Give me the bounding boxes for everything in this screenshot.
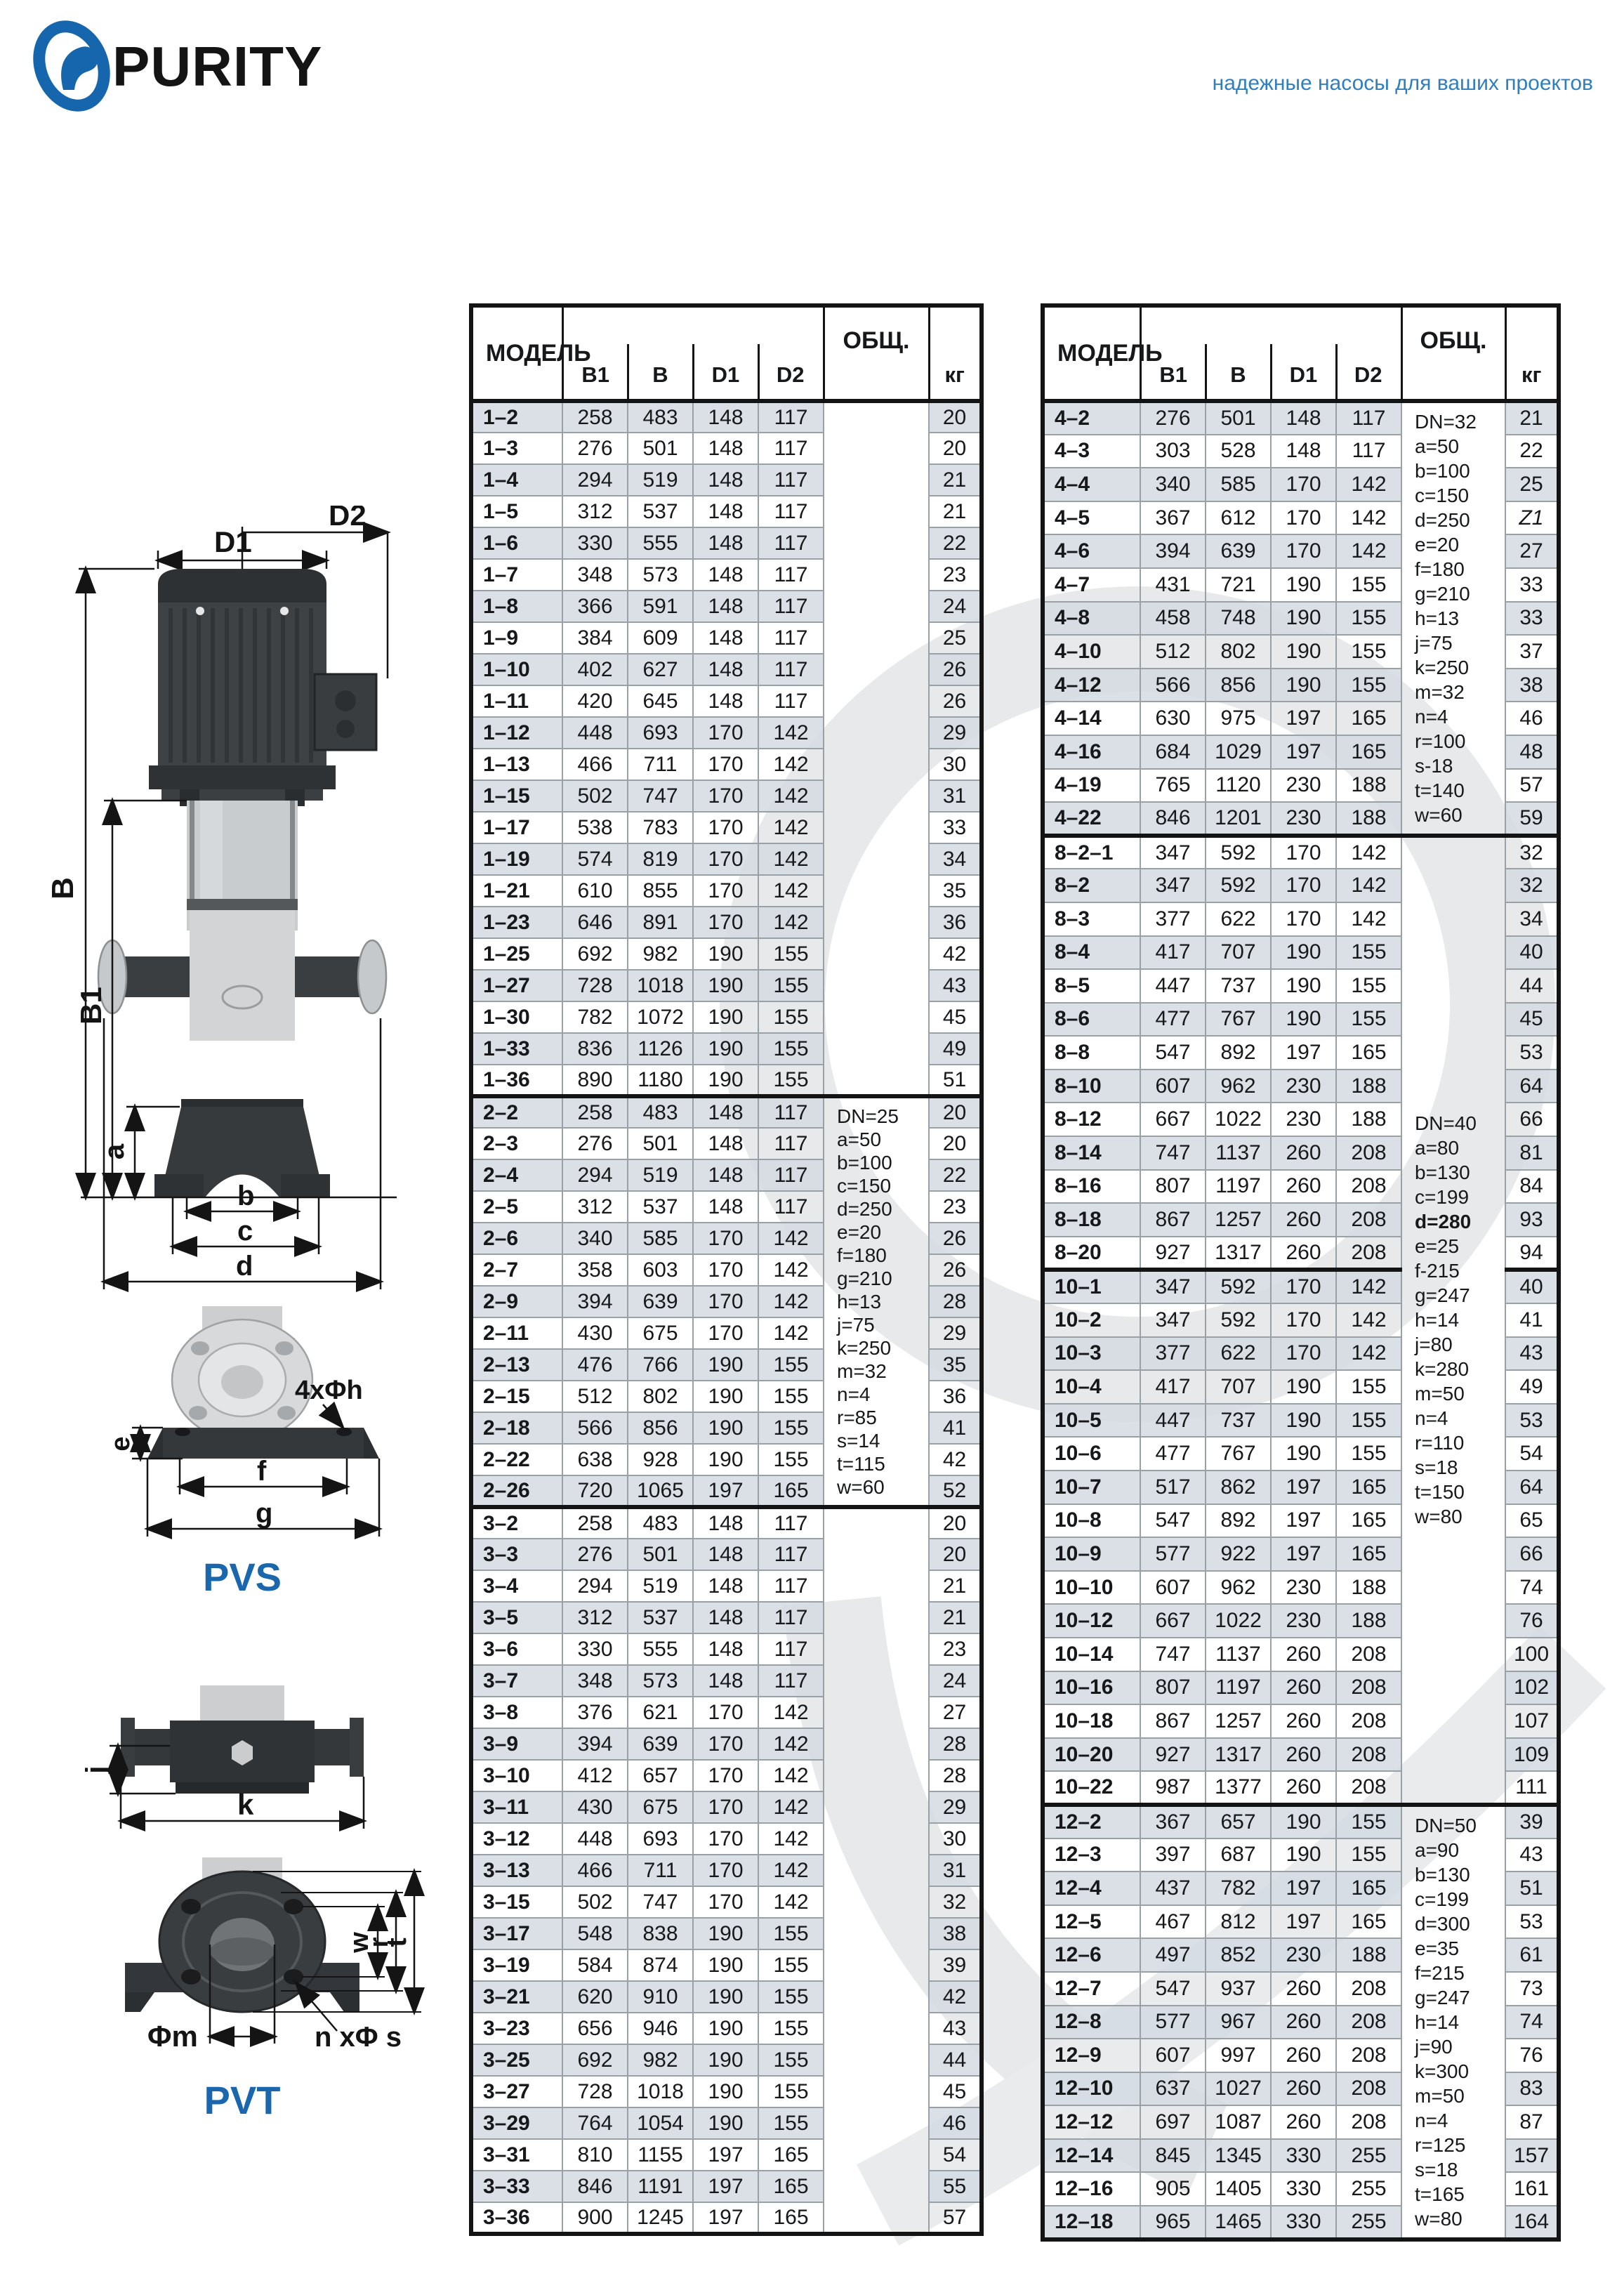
value-cell: 276 xyxy=(1140,401,1206,435)
value-cell: 155 xyxy=(758,1065,824,1096)
value-cell: 117 xyxy=(758,1507,824,1539)
value-cell: 165 xyxy=(1336,1036,1401,1070)
value-cell: 728 xyxy=(562,970,628,1001)
value-cell: 155 xyxy=(1336,568,1401,602)
value-cell: 190 xyxy=(693,1981,758,2013)
value-cell: 430 xyxy=(562,1317,628,1349)
dn-note-line: DN=40 xyxy=(1415,1111,1505,1136)
value-cell: 170 xyxy=(693,1728,758,1760)
kg-cell: 40 xyxy=(1505,1270,1559,1303)
value-cell: 609 xyxy=(628,622,693,654)
model-cell: 3–12 xyxy=(471,1823,562,1855)
kg-cell: 23 xyxy=(929,559,982,591)
value-cell: 148 xyxy=(693,591,758,622)
model-cell: 4–10 xyxy=(1043,635,1140,669)
value-cell: 117 xyxy=(758,1570,824,1602)
value-cell: 592 xyxy=(1206,1270,1271,1303)
value-cell: 142 xyxy=(758,1886,824,1918)
kg-cell: 65 xyxy=(1505,1504,1559,1538)
value-cell: 117 xyxy=(758,1602,824,1633)
value-cell: 170 xyxy=(1271,501,1336,535)
value-cell: 330 xyxy=(1271,2206,1336,2239)
dn-note-line: b=100 xyxy=(837,1151,928,1174)
value-cell: 155 xyxy=(758,2107,824,2139)
value-cell: 165 xyxy=(1336,1471,1401,1504)
kg-cell: 39 xyxy=(1505,1805,1559,1838)
value-cell: 197 xyxy=(1271,1036,1336,1070)
value-cell: 639 xyxy=(628,1286,693,1317)
model-cell: 1–27 xyxy=(471,970,562,1001)
value-cell: 537 xyxy=(628,496,693,527)
value-cell: 767 xyxy=(1206,1437,1271,1471)
value-cell: 477 xyxy=(1140,1003,1206,1037)
value-cell: 810 xyxy=(562,2139,628,2171)
value-cell: 165 xyxy=(1336,702,1401,735)
value-cell: 402 xyxy=(562,654,628,685)
model-cell: 1–8 xyxy=(471,591,562,622)
value-cell: 170 xyxy=(1271,1337,1336,1371)
kg-cell: 22 xyxy=(929,1159,982,1191)
table-row-1–2: 1–225848314811720 xyxy=(471,401,982,433)
dn-note-line: k=250 xyxy=(837,1336,928,1360)
kg-cell: 64 xyxy=(1505,1471,1559,1504)
value-cell: 260 xyxy=(1271,1738,1336,1772)
value-cell: 190 xyxy=(693,2044,758,2076)
value-cell: 117 xyxy=(758,1633,824,1665)
value-cell: 142 xyxy=(758,1254,824,1286)
value-cell: 197 xyxy=(693,2202,758,2234)
value-cell: 117 xyxy=(758,622,824,654)
value-cell: 1072 xyxy=(628,1001,693,1033)
value-cell: 645 xyxy=(628,685,693,717)
model-cell: 8–20 xyxy=(1043,1237,1140,1270)
kg-cell: 20 xyxy=(929,1539,982,1570)
value-cell: 165 xyxy=(758,1475,824,1507)
value-cell: 258 xyxy=(562,401,628,433)
value-cell: 577 xyxy=(1140,2006,1206,2039)
value-cell: 190 xyxy=(693,1349,758,1381)
kg-cell: 29 xyxy=(929,717,982,749)
value-cell: 148 xyxy=(693,1602,758,1633)
value-cell: 610 xyxy=(562,875,628,907)
model-cell: 12–12 xyxy=(1043,2105,1140,2139)
model-cell: 10–18 xyxy=(1043,1704,1140,1738)
dn-note-line: f=215 xyxy=(1415,1961,1505,1985)
model-cell: 12–2 xyxy=(1043,1805,1140,1838)
dn-note-line: f=180 xyxy=(1415,557,1505,581)
kg-cell: 57 xyxy=(929,2202,982,2234)
value-cell: 1377 xyxy=(1206,1771,1271,1805)
kg-cell: 31 xyxy=(929,780,982,812)
dn-note-line: e=25 xyxy=(1415,1234,1505,1258)
value-cell: 431 xyxy=(1140,568,1206,602)
value-cell: 170 xyxy=(693,1697,758,1728)
value-cell: 707 xyxy=(1206,936,1271,970)
dn-note-line: n=4 xyxy=(1415,704,1505,729)
value-cell: 548 xyxy=(562,1918,628,1949)
kg-cell: 76 xyxy=(1505,1604,1559,1638)
kg-cell: 45 xyxy=(1505,1003,1559,1037)
value-cell: 483 xyxy=(628,1096,693,1128)
dn-note-cell: DN=32a=50b=100c=150d=250e=20f=180g=210h=… xyxy=(1401,401,1505,836)
dim-label-bb: b xyxy=(237,1180,254,1211)
value-cell: 711 xyxy=(628,749,693,780)
model-cell: 3–25 xyxy=(471,2044,562,2076)
value-cell: 584 xyxy=(562,1949,628,1981)
value-cell: 538 xyxy=(562,812,628,843)
value-cell: 937 xyxy=(1206,1972,1271,2006)
logo-icon xyxy=(27,20,115,112)
dn-note-cell: DN=40a=80b=130c=199d=280e=25f-215g=247h=… xyxy=(1401,836,1505,1805)
value-cell: 148 xyxy=(693,1128,758,1159)
dn-note-line: j=75 xyxy=(1415,631,1505,655)
kg-cell: 28 xyxy=(929,1728,982,1760)
value-cell: 197 xyxy=(693,2139,758,2171)
value-cell: 397 xyxy=(1140,1838,1206,1872)
model-cell: 8–8 xyxy=(1043,1036,1140,1070)
value-cell: 148 xyxy=(693,433,758,464)
dn-note-line: d=280 xyxy=(1415,1209,1505,1234)
model-cell: 4–3 xyxy=(1043,435,1140,468)
value-cell: 1257 xyxy=(1206,1203,1271,1237)
model-cell: 4–2 xyxy=(1043,401,1140,435)
kg-cell: 54 xyxy=(1505,1437,1559,1471)
value-cell: 377 xyxy=(1140,1337,1206,1371)
value-cell: 607 xyxy=(1140,1070,1206,1103)
model-cell: 3–33 xyxy=(471,2171,562,2202)
column-header-obsh: ОБЩ. xyxy=(824,305,929,401)
value-cell: 1257 xyxy=(1206,1704,1271,1738)
value-cell: 537 xyxy=(628,1602,693,1633)
value-cell: 294 xyxy=(562,1570,628,1602)
kg-cell: 157 xyxy=(1505,2139,1559,2173)
value-cell: 592 xyxy=(1206,1303,1271,1337)
model-cell: 2–7 xyxy=(471,1254,562,1286)
kg-cell: 43 xyxy=(1505,1838,1559,1872)
value-cell: 1465 xyxy=(1206,2206,1271,2239)
value-cell: 165 xyxy=(1336,1905,1401,1939)
kg-cell: 66 xyxy=(1505,1537,1559,1571)
value-cell: 148 xyxy=(693,1159,758,1191)
value-cell: 208 xyxy=(1336,1771,1401,1805)
model-cell: 10–9 xyxy=(1043,1537,1140,1571)
kg-cell: 164 xyxy=(1505,2206,1559,2239)
kg-cell: 21 xyxy=(929,464,982,496)
value-cell: 922 xyxy=(1206,1537,1271,1571)
kg-cell: 42 xyxy=(929,938,982,970)
model-cell: 10–8 xyxy=(1043,1504,1140,1538)
value-cell: 1191 xyxy=(628,2171,693,2202)
model-cell: 1–2 xyxy=(471,401,562,433)
kg-cell: 49 xyxy=(1505,1370,1559,1404)
model-cell: 1–17 xyxy=(471,812,562,843)
pvt-flange-illustration: Φm n xΦ s w r t PVT xyxy=(125,1857,421,2122)
dn-note-cell: DN=50a=90b=130c=199d=300e=35f=215g=247h=… xyxy=(1401,1805,1505,2239)
value-cell: 573 xyxy=(628,1665,693,1697)
kg-cell: 29 xyxy=(929,1791,982,1823)
model-cell: 1–12 xyxy=(471,717,562,749)
value-cell: 117 xyxy=(758,496,824,527)
model-cell: 3–36 xyxy=(471,2202,562,2234)
kg-cell: 20 xyxy=(929,433,982,464)
value-cell: 117 xyxy=(758,1539,824,1570)
value-cell: 394 xyxy=(562,1728,628,1760)
value-cell: 765 xyxy=(1140,769,1206,803)
dn-note-line: m=32 xyxy=(837,1360,928,1383)
dim-label-e: e xyxy=(106,1436,136,1451)
model-cell: 8–5 xyxy=(1043,969,1140,1003)
value-cell: 607 xyxy=(1140,2039,1206,2072)
dn-note-line: t=165 xyxy=(1415,2182,1505,2206)
kg-cell: 20 xyxy=(929,1507,982,1539)
value-cell: 347 xyxy=(1140,1270,1206,1303)
value-cell: 170 xyxy=(1271,869,1336,902)
value-cell: 155 xyxy=(1336,1404,1401,1438)
dn-note-line: m=32 xyxy=(1415,680,1505,704)
value-cell: 501 xyxy=(628,1539,693,1570)
value-cell: 155 xyxy=(1336,1805,1401,1838)
dn-note-line: j=75 xyxy=(837,1313,928,1336)
kg-cell: 41 xyxy=(1505,1303,1559,1337)
value-cell: 230 xyxy=(1271,1604,1336,1638)
value-cell: 190 xyxy=(1271,969,1336,1003)
dim-label-c: c xyxy=(237,1216,253,1246)
value-cell: 330 xyxy=(1271,2172,1336,2206)
model-cell: 3–3 xyxy=(471,1539,562,1570)
kg-cell: 44 xyxy=(929,2044,982,2076)
value-cell: 117 xyxy=(758,685,824,717)
kg-cell: 93 xyxy=(1505,1203,1559,1237)
value-cell: 148 xyxy=(693,527,758,559)
model-cell: 2–13 xyxy=(471,1349,562,1381)
kg-cell: 46 xyxy=(929,2107,982,2139)
model-cell: 3–10 xyxy=(471,1760,562,1791)
value-cell: 890 xyxy=(562,1065,628,1096)
value-cell: 467 xyxy=(1140,1905,1206,1939)
value-cell: 1155 xyxy=(628,2139,693,2171)
model-cell: 1–21 xyxy=(471,875,562,907)
value-cell: 639 xyxy=(1206,534,1271,568)
value-cell: 197 xyxy=(1271,735,1336,769)
kg-cell: Z1 xyxy=(1505,501,1559,535)
value-cell: 547 xyxy=(1140,1972,1206,2006)
value-cell: 711 xyxy=(628,1855,693,1886)
model-cell: 4–16 xyxy=(1043,735,1140,769)
model-cell: 2–3 xyxy=(471,1128,562,1159)
value-cell: 148 xyxy=(693,1633,758,1665)
kg-cell: 29 xyxy=(929,1317,982,1349)
kg-cell: 35 xyxy=(929,875,982,907)
value-cell: 117 xyxy=(1336,401,1401,435)
dn-note-line: r=100 xyxy=(1415,729,1505,754)
dn-note-line: r=110 xyxy=(1415,1430,1505,1455)
model-cell: 10–4 xyxy=(1043,1370,1140,1404)
value-cell: 819 xyxy=(628,843,693,875)
dn-note-line: t=150 xyxy=(1415,1480,1505,1504)
value-cell: 910 xyxy=(628,1981,693,2013)
value-cell: 607 xyxy=(1140,1571,1206,1605)
model-cell: 4–19 xyxy=(1043,769,1140,803)
column-header-d2: D2 xyxy=(758,305,824,401)
kg-cell: 35 xyxy=(929,1349,982,1381)
dim-table-right: МОДЕЛЬB1BD1D2ОБЩ.кг4–2276501148117DN=32a… xyxy=(1041,303,1561,2242)
value-cell: 155 xyxy=(758,1981,824,2013)
value-cell: 155 xyxy=(758,1381,824,1412)
model-cell: 4–6 xyxy=(1043,534,1140,568)
value-cell: 170 xyxy=(693,717,758,749)
value-cell: 867 xyxy=(1140,1203,1206,1237)
value-cell: 190 xyxy=(693,970,758,1001)
value-cell: 603 xyxy=(628,1254,693,1286)
value-cell: 1317 xyxy=(1206,1237,1271,1270)
kg-cell: 42 xyxy=(929,1981,982,2013)
dn-note-line: f=180 xyxy=(837,1244,928,1267)
value-cell: 117 xyxy=(758,1191,824,1223)
model-cell: 8–4 xyxy=(1043,936,1140,970)
value-cell: 142 xyxy=(758,749,824,780)
model-cell: 3–6 xyxy=(471,1633,562,1665)
value-cell: 962 xyxy=(1206,1070,1271,1103)
value-cell: 190 xyxy=(1271,1437,1336,1471)
dn-note-line: h=13 xyxy=(837,1290,928,1313)
value-cell: 208 xyxy=(1336,1203,1401,1237)
kg-cell: 23 xyxy=(929,1191,982,1223)
dn-note-line: b=100 xyxy=(1415,459,1505,483)
table-header-row: МОДЕЛЬB1BD1D2ОБЩ.кг xyxy=(1043,305,1559,401)
dn-note-line: e=20 xyxy=(837,1221,928,1244)
value-cell: 208 xyxy=(1336,1704,1401,1738)
kg-cell: 26 xyxy=(929,654,982,685)
value-cell: 721 xyxy=(1206,568,1271,602)
value-cell: 155 xyxy=(758,2044,824,2076)
kg-cell: 44 xyxy=(1505,969,1559,1003)
kg-cell: 33 xyxy=(1505,602,1559,636)
value-cell: 117 xyxy=(758,464,824,496)
model-cell: 10–16 xyxy=(1043,1671,1140,1705)
value-cell: 845 xyxy=(1140,2139,1206,2173)
value-cell: 142 xyxy=(1336,902,1401,936)
value-cell: 142 xyxy=(1336,534,1401,568)
value-cell: 190 xyxy=(1271,1838,1336,1872)
value-cell: 155 xyxy=(758,1949,824,1981)
value-cell: 483 xyxy=(628,401,693,433)
kg-cell: 53 xyxy=(1505,1036,1559,1070)
value-cell: 1022 xyxy=(1206,1103,1271,1136)
kg-cell: 26 xyxy=(929,1254,982,1286)
kg-cell: 87 xyxy=(1505,2105,1559,2139)
dim-label-t: t xyxy=(381,1938,412,1947)
dn-note-line: DN=50 xyxy=(1415,1813,1505,1838)
dn-note-line: s=14 xyxy=(837,1429,928,1452)
dn-note-line: g=210 xyxy=(837,1267,928,1290)
kg-cell: 59 xyxy=(1505,802,1559,836)
value-cell: 430 xyxy=(562,1791,628,1823)
kg-cell: 52 xyxy=(929,1475,982,1507)
dn-note-line: r=85 xyxy=(837,1406,928,1429)
value-cell: 420 xyxy=(562,685,628,717)
table-header-row: МОДЕЛЬB1BD1D2ОБЩ.кг xyxy=(471,305,982,401)
kg-cell: 27 xyxy=(929,1697,982,1728)
dn-note-line: t=115 xyxy=(837,1452,928,1475)
model-cell: 3–23 xyxy=(471,2013,562,2044)
value-cell: 764 xyxy=(562,2107,628,2139)
value-cell: 437 xyxy=(1140,1872,1206,1905)
model-cell: 12–18 xyxy=(1043,2206,1140,2239)
dn-note-line: e=20 xyxy=(1415,532,1505,557)
value-cell: 142 xyxy=(758,1223,824,1254)
kg-cell: 109 xyxy=(1505,1738,1559,1772)
value-cell: 501 xyxy=(628,433,693,464)
value-cell: 693 xyxy=(628,1823,693,1855)
kg-cell: 74 xyxy=(1505,1571,1559,1605)
model-cell: 1–36 xyxy=(471,1065,562,1096)
value-cell: 1029 xyxy=(1206,735,1271,769)
model-cell: 10–14 xyxy=(1043,1638,1140,1671)
value-cell: 891 xyxy=(628,907,693,938)
dn-note-line: n=4 xyxy=(1415,1406,1505,1430)
value-cell: 737 xyxy=(1206,1404,1271,1438)
value-cell: 142 xyxy=(758,1728,824,1760)
model-cell: 1–7 xyxy=(471,559,562,591)
value-cell: 447 xyxy=(1140,969,1206,1003)
dn-note-line: DN=25 xyxy=(837,1105,928,1128)
value-cell: 747 xyxy=(1140,1638,1206,1671)
value-cell: 260 xyxy=(1271,1170,1336,1204)
kg-cell: 25 xyxy=(1505,468,1559,501)
kg-cell: 25 xyxy=(929,622,982,654)
model-cell: 8–12 xyxy=(1043,1103,1140,1136)
kg-cell: 100 xyxy=(1505,1638,1559,1671)
value-cell: 148 xyxy=(693,1096,758,1128)
value-cell: 188 xyxy=(1336,769,1401,803)
value-cell: 630 xyxy=(1140,702,1206,735)
dn-note-line: f-215 xyxy=(1415,1258,1505,1283)
dn-note-line: h=14 xyxy=(1415,2010,1505,2034)
kg-cell: 39 xyxy=(929,1949,982,1981)
value-cell: 170 xyxy=(1271,836,1336,869)
value-cell: 1126 xyxy=(628,1033,693,1065)
model-cell: 10–12 xyxy=(1043,1604,1140,1638)
value-cell: 165 xyxy=(758,2171,824,2202)
model-cell: 2–18 xyxy=(471,1412,562,1444)
model-cell: 1–19 xyxy=(471,843,562,875)
model-cell: 12–5 xyxy=(1043,1905,1140,1939)
value-cell: 208 xyxy=(1336,1638,1401,1671)
value-cell: 155 xyxy=(758,1349,824,1381)
value-cell: 142 xyxy=(1336,869,1401,902)
value-cell: 417 xyxy=(1140,936,1206,970)
value-cell: 170 xyxy=(693,749,758,780)
value-cell: 928 xyxy=(628,1444,693,1475)
value-cell: 637 xyxy=(1140,2072,1206,2106)
dn-note-line: w=60 xyxy=(1415,803,1505,827)
dn-note-line: s-18 xyxy=(1415,754,1505,778)
value-cell: 856 xyxy=(628,1412,693,1444)
value-cell: 258 xyxy=(562,1096,628,1128)
kg-cell: 76 xyxy=(1505,2039,1559,2072)
value-cell: 142 xyxy=(758,875,824,907)
dn-note-line: m=50 xyxy=(1415,1381,1505,1406)
value-cell: 347 xyxy=(1140,836,1206,869)
pvt-label: PVT xyxy=(204,2078,281,2122)
value-cell: 687 xyxy=(1206,1838,1271,1872)
value-cell: 170 xyxy=(1271,468,1336,501)
value-cell: 208 xyxy=(1336,1170,1401,1204)
value-cell: 230 xyxy=(1271,1103,1336,1136)
model-cell: 12–7 xyxy=(1043,1972,1140,2006)
kg-cell: 81 xyxy=(1505,1136,1559,1170)
value-cell: 1317 xyxy=(1206,1738,1271,1772)
